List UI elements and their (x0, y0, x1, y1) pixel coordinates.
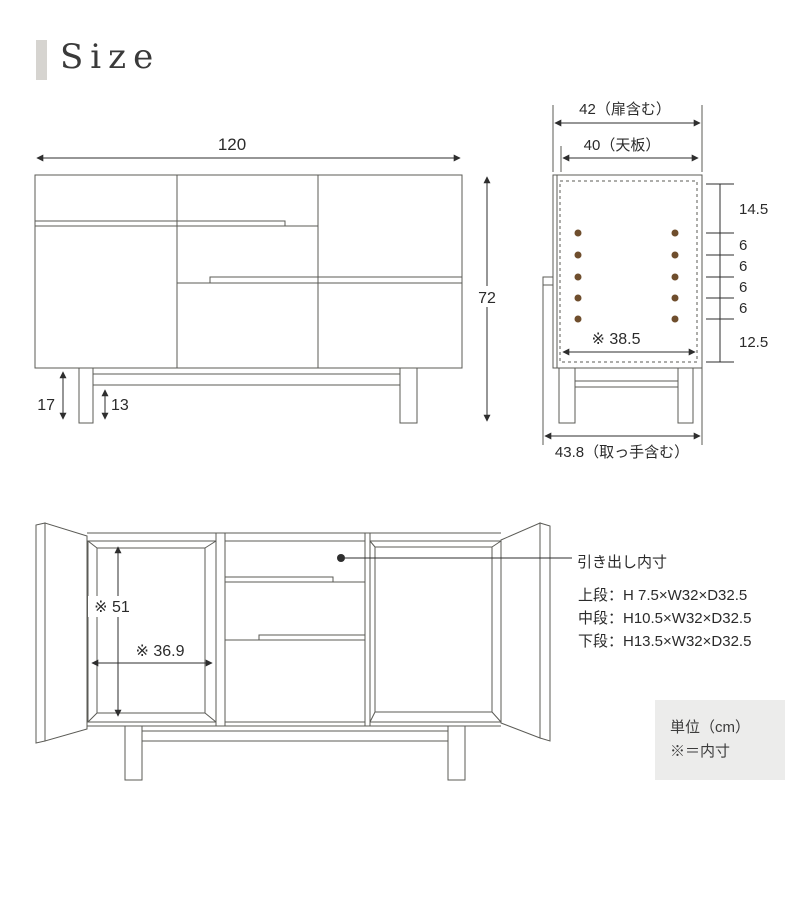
pitch-label: 14.5 (739, 201, 768, 218)
pitch-label: 6 (739, 300, 747, 317)
middle-section-panel-lines (225, 541, 365, 722)
front-leg-rail (93, 374, 400, 385)
side-view-labels: 42（扉含む） 40（天板） ※ 38.5 43.8（取っ手含む） 14.5 6… (555, 101, 768, 461)
door-divider-lines (177, 175, 318, 368)
inner-depth-label: ※ 38.5 (592, 331, 641, 348)
open-view-right-leg (448, 726, 465, 780)
pitch-label: 6 (739, 237, 747, 254)
rail-clearance-label: 13 (111, 397, 129, 414)
drawer-leader-dot (337, 554, 345, 562)
pin-hole (575, 230, 582, 237)
pin-hole (575, 316, 582, 323)
leg-height-label: 17 (37, 397, 55, 414)
depth-with-handle-label: 43.8（取っ手含む） (555, 444, 689, 461)
right-door-face (501, 523, 540, 738)
front-right-leg (400, 368, 417, 423)
left-compartment-back (97, 548, 205, 713)
pitch-label: 6 (739, 258, 747, 275)
interior-partition-lines (216, 533, 370, 726)
open-view-labels: ※ 51 ※ 36.9 引き出し内寸 上段：H 7.5×W32×D32.5 中段… (94, 554, 751, 660)
shelf-pin-holes (575, 230, 679, 323)
upper-drawer-divider (225, 577, 365, 582)
left-door-face (45, 523, 87, 741)
side-leg-rail (575, 381, 678, 387)
left-compartment-opening (88, 541, 216, 722)
front-view-dimensions (37, 158, 503, 421)
front-view (35, 175, 462, 423)
open-view-dimensions (88, 547, 572, 716)
left-door-edge (36, 523, 45, 743)
lower-drawer-divider (225, 635, 365, 640)
depth-with-door-label: 42（扉含む） (579, 101, 671, 118)
side-front-leg (559, 368, 575, 423)
drawer-spec-top: 上段：H 7.5×W32×D32.5 (578, 587, 747, 604)
shelf-pitch-scale (706, 184, 734, 362)
pin-hole (672, 274, 679, 281)
side-back-leg (678, 368, 693, 423)
left-compartment-perspective-lines (88, 541, 216, 722)
height-dimension-label: 72 (478, 290, 496, 307)
pin-hole (575, 252, 582, 259)
cabinet-body-outline (35, 175, 462, 368)
right-compartment-opening (370, 541, 501, 722)
pin-hole (575, 295, 582, 302)
side-view (543, 105, 702, 445)
unit-note-box: 単位（cm） ※＝内寸 (655, 700, 785, 780)
top-panel-depth-label: 40（天板） (584, 136, 661, 154)
open-view (36, 523, 550, 780)
open-view-left-leg (125, 726, 142, 780)
right-compartment-back (375, 547, 492, 712)
width-dimension-label: 120 (218, 135, 246, 154)
right-compartment-perspective-lines (370, 541, 501, 722)
pin-hole (672, 295, 679, 302)
unit-note: 単位（cm） (670, 716, 785, 740)
pitch-label: 12.5 (739, 334, 768, 351)
inner-height-label: ※ 51 (94, 599, 130, 616)
pitch-label: 6 (739, 279, 747, 296)
drawer-inner-size-title: 引き出し内寸 (577, 554, 667, 571)
lower-handle-groove (177, 277, 462, 283)
pin-hole (672, 316, 679, 323)
size-diagram-page: Size 120 72 17 13 (0, 0, 800, 900)
drawer-spec-bottom: 下段：H13.5×W32×D32.5 (578, 633, 751, 650)
side-view-dimensions (545, 123, 734, 436)
front-view-labels: 120 72 17 13 (37, 135, 496, 414)
carcass-top-bottom-lines (87, 533, 501, 726)
right-door-edge (540, 523, 550, 741)
pin-hole (672, 230, 679, 237)
door-handle-tab (543, 277, 553, 285)
front-left-leg (79, 368, 93, 423)
inner-width-label: ※ 36.9 (136, 643, 185, 660)
open-view-leg-rail (142, 731, 448, 741)
drawer-spec-middle: 中段：H10.5×W32×D32.5 (578, 610, 751, 627)
pin-hole (672, 252, 679, 259)
legend-note: ※＝内寸 (670, 740, 785, 764)
pin-hole (575, 274, 582, 281)
